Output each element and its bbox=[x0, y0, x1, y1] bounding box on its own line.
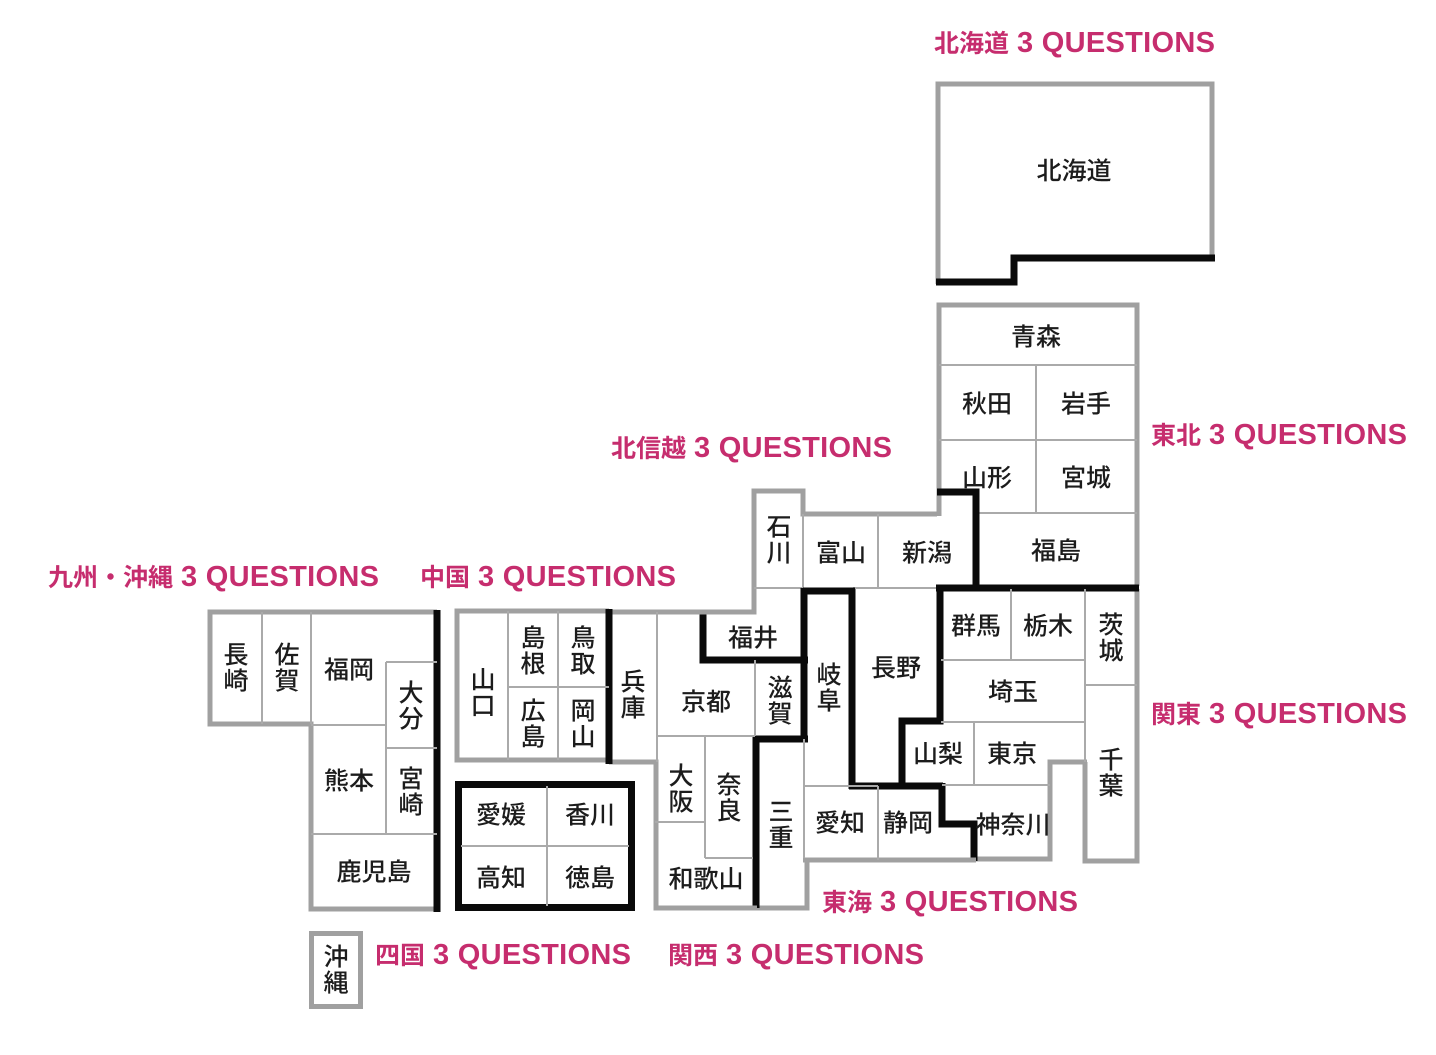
svg-text:3 QUESTIONS: 3 QUESTIONS bbox=[1017, 27, 1215, 59]
svg-text:3 QUESTIONS: 3 QUESTIONS bbox=[433, 939, 631, 971]
svg-text:3 QUESTIONS: 3 QUESTIONS bbox=[880, 886, 1078, 918]
svg-text:3 QUESTIONS: 3 QUESTIONS bbox=[1209, 419, 1407, 451]
svg-text:3 QUESTIONS: 3 QUESTIONS bbox=[1209, 698, 1407, 730]
svg-text:3 QUESTIONS: 3 QUESTIONS bbox=[478, 561, 676, 593]
svg-text:3 QUESTIONS: 3 QUESTIONS bbox=[726, 939, 924, 971]
svg-text:3 QUESTIONS: 3 QUESTIONS bbox=[181, 561, 379, 593]
svg-text:3 QUESTIONS: 3 QUESTIONS bbox=[694, 432, 892, 464]
